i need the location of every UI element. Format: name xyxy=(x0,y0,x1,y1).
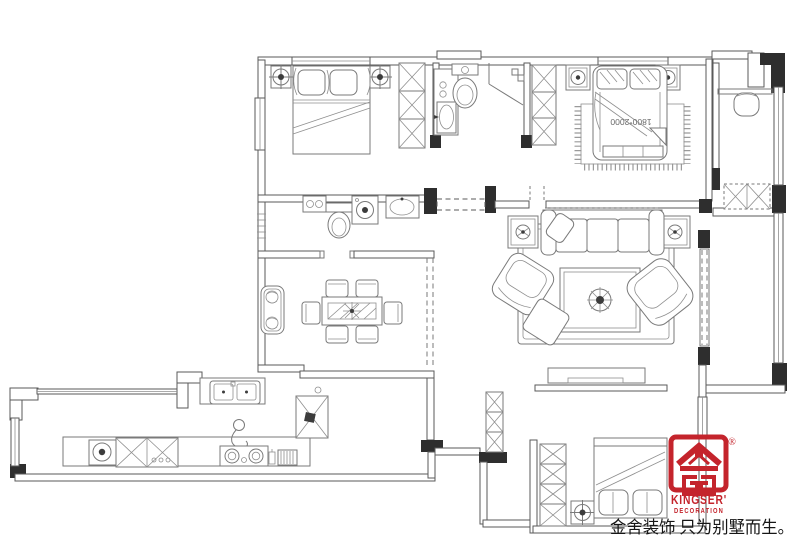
tv-cabinet-icon xyxy=(548,368,645,383)
bed-bench xyxy=(603,146,663,157)
window-bedroom2-top xyxy=(598,57,668,65)
centerpiece-icon xyxy=(343,302,361,320)
living-room xyxy=(489,208,698,383)
double-bed-icon xyxy=(293,66,370,154)
coffee-table-icon xyxy=(560,268,640,332)
hall-opening-dashed xyxy=(437,199,485,210)
bedroom2-door-dashed xyxy=(530,186,544,201)
window-balcony2-east xyxy=(774,213,783,363)
balcony-sliding-door xyxy=(700,249,709,346)
study-balcony xyxy=(718,89,772,209)
bedroom-top-right: 1800*2000 xyxy=(532,65,687,167)
dining-chair xyxy=(302,302,320,324)
window-laundry-top xyxy=(37,389,177,394)
range-vent-icon xyxy=(278,450,297,465)
shoe-cabinet-icon xyxy=(486,392,503,452)
dining-room xyxy=(261,280,402,343)
pillow xyxy=(633,490,662,515)
window-laundry-left xyxy=(11,418,19,466)
dining-chair xyxy=(384,302,402,324)
sink-icon xyxy=(386,196,419,218)
pillow xyxy=(597,69,627,89)
dining-chair xyxy=(356,280,378,297)
kingser-logo: ® KINGSER' DECORATION xyxy=(671,437,736,515)
cabinet-icon xyxy=(724,184,770,209)
bathroom-top xyxy=(434,63,524,135)
master-bedroom xyxy=(269,63,425,154)
logo-brand-text: KINGSER' xyxy=(671,493,727,507)
floor-plan-drawing: 1800*2000 xyxy=(0,0,800,558)
sideboard-icon xyxy=(261,286,284,334)
side-table xyxy=(508,216,538,248)
wardrobe-icon xyxy=(540,444,566,526)
bedroom-bottom xyxy=(540,438,667,526)
window-master-left xyxy=(255,98,265,150)
base-cabinet-icon xyxy=(116,438,178,467)
vanity-sink-icon xyxy=(434,69,458,135)
bottle-icon xyxy=(269,449,275,464)
toilet-icon xyxy=(452,64,478,108)
island-cabinet-icon xyxy=(296,387,328,438)
pillow xyxy=(630,69,660,89)
bed-size-label: 1800*2000 xyxy=(610,117,651,127)
hallway xyxy=(486,392,503,452)
double-bed-icon xyxy=(594,438,667,518)
dining-table-icon xyxy=(322,297,382,325)
dining-chair xyxy=(356,326,378,343)
washing-machine-icon xyxy=(89,440,116,465)
sofa-icon xyxy=(541,208,664,255)
window-balcony1-east xyxy=(774,87,783,185)
stove-icon xyxy=(220,446,268,466)
shower-icon xyxy=(489,63,524,105)
logo-subtitle-text: DECORATION xyxy=(674,508,724,515)
dining-hall-opening-dashed xyxy=(427,258,433,368)
cabinet-icon xyxy=(303,196,326,212)
pillow xyxy=(599,490,628,515)
faucet-icon xyxy=(232,420,248,449)
floor-plan-page: 1800*2000 xyxy=(0,0,800,558)
toilet-icon xyxy=(326,203,352,238)
slogan-text: 金舍装饰 只为别墅而生。 xyxy=(610,518,794,537)
wardrobe-icon xyxy=(399,63,425,148)
window-master-top xyxy=(292,57,370,65)
wardrobe-icon xyxy=(532,65,556,145)
downlight-icon xyxy=(566,65,590,90)
dining-chair xyxy=(326,326,348,343)
kitchen-sink-icon xyxy=(200,378,265,404)
desk-chair-icon xyxy=(734,93,759,116)
dining-chair xyxy=(326,280,348,297)
double-bed-icon xyxy=(593,66,667,160)
washing-machine-icon xyxy=(352,196,378,224)
bathroom-middle xyxy=(303,196,419,238)
registered-mark: ® xyxy=(728,437,736,448)
window-bedroom3-east xyxy=(698,397,707,435)
